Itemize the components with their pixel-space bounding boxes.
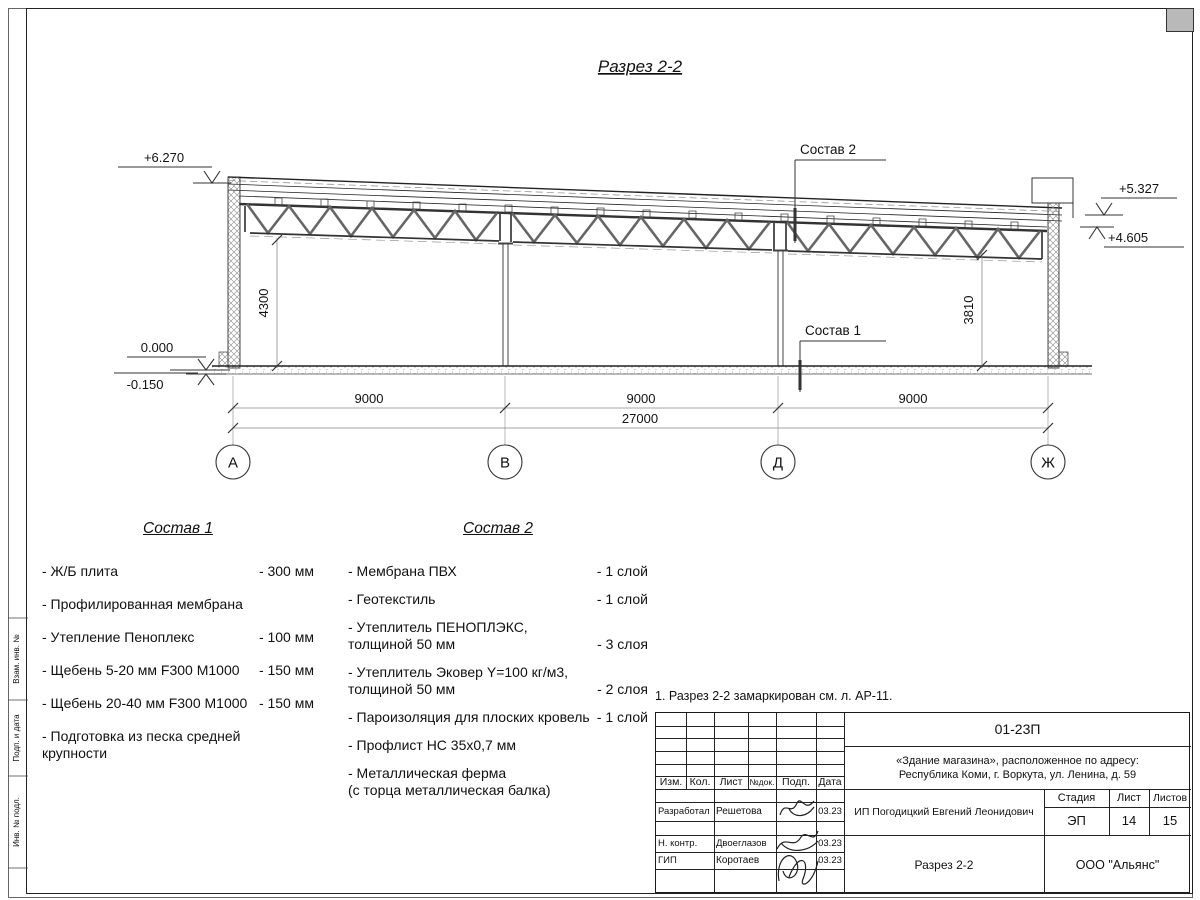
item-name: - Щебень 20-40 мм F300 М1000 — [42, 695, 247, 712]
list-item: - Геотекстиль - 1 слой — [348, 591, 648, 608]
elevation-0000-label: 0.000 — [141, 340, 174, 355]
truss-bottom-chords — [250, 233, 1042, 259]
tb-date-developer: 03.23 — [816, 802, 844, 821]
margin-label-inv: Инв. № подл. — [12, 797, 21, 847]
elevation-4605-label: +4.605 — [1108, 230, 1148, 245]
item-value: - 3 слоя — [597, 636, 648, 653]
callout-sostav1: Состав 1 — [805, 323, 861, 338]
tb-sheet-value: 14 — [1109, 807, 1149, 835]
item-name: - Ж/Б плита — [42, 563, 118, 580]
elevation-6270-label: +6.270 — [144, 150, 184, 165]
elevation-6270 — [118, 167, 231, 183]
section-drawing: Разрез 2-2 — [0, 0, 1200, 520]
list-item: - Утеплитель Эковер Y=100 кг/м3, толщино… — [348, 664, 648, 698]
sostav1-list: Состав 1 - Ж/Б плита - 300 мм - Профилир… — [42, 520, 314, 778]
signature-developer — [777, 793, 817, 821]
callouts: Состав 2 Состав 1 — [795, 142, 886, 392]
item-name: - Подготовка из песка средней крупности — [42, 728, 241, 762]
tb-role-gip: ГИП — [658, 852, 714, 869]
left-plinth — [219, 352, 228, 366]
list-item: - Утеплитель ПЕНОПЛЭКС, толщиной 50 мм -… — [348, 619, 648, 653]
item-value: - 150 мм — [259, 695, 314, 712]
floor-slab — [212, 366, 1092, 374]
grid-label-b: В — [500, 455, 510, 472]
left-wall — [228, 177, 240, 368]
tb-client: ИП Погодицкий Евгений Леонидович — [844, 789, 1044, 835]
dim-bay3: 9000 — [899, 391, 928, 406]
drawing-sheet: Разрез 2-2 — [0, 0, 1200, 900]
tb-object-name: «Здание магазина», расположенное по адре… — [844, 746, 1191, 789]
item-name: - Утепление Пеноплекс — [42, 629, 194, 646]
elevation-neg0150-label: -0.150 — [127, 377, 164, 392]
drawing-title: Разрез 2-2 — [598, 57, 683, 76]
roof-layers — [228, 177, 1073, 227]
list-item: - Мембрана ПВХ - 1 слой — [348, 563, 648, 580]
item-value: - 300 мм — [259, 563, 314, 580]
tb-header-podp: Подп. — [776, 776, 816, 789]
truss — [239, 198, 1047, 262]
columns — [498, 244, 788, 367]
dim-bay1: 9000 — [355, 391, 384, 406]
item-name: - Утеплитель ПЕНОПЛЭКС, толщиной 50 мм — [348, 619, 528, 653]
tb-name-developer: Решетова — [716, 802, 776, 821]
tb-header-kol: Кол. — [686, 776, 714, 789]
item-value: - 2 слоя — [597, 681, 648, 698]
signature-gip — [773, 841, 821, 891]
tb-stage-value: ЭП — [1044, 807, 1109, 835]
item-value: - 1 слой — [597, 709, 648, 726]
item-name: - Мембрана ПВХ — [348, 563, 457, 580]
grid-label-a: А — [228, 455, 238, 472]
tb-header-data: Дата — [816, 776, 844, 789]
tb-role-developer: Разработал — [658, 802, 714, 821]
item-name: - Геотекстиль — [348, 591, 435, 608]
dim-height-left: 4300 — [256, 289, 271, 318]
callout-sostav2: Состав 2 — [800, 142, 856, 157]
list-item: - Щебень 5-20 мм F300 М1000 - 150 мм — [42, 662, 314, 679]
item-name: - Утеплитель Эковер Y=100 кг/м3, толщино… — [348, 664, 568, 698]
tb-doc-number: 01-23П — [844, 713, 1191, 746]
elevation-5327-label: +5.327 — [1119, 181, 1159, 196]
truss-end-posts — [245, 206, 1042, 259]
tb-header-list: Лист — [714, 776, 748, 789]
list-item: - Профилированная мембрана — [42, 596, 314, 613]
roof-edge-detail — [1032, 178, 1073, 203]
item-name: - Профлист НС 35х0,7 мм — [348, 737, 516, 754]
list-item: - Ж/Б плита - 300 мм — [42, 563, 314, 580]
tb-stage-label: Стадия — [1044, 789, 1109, 807]
grid-label-zh: Ж — [1041, 455, 1055, 472]
tb-sheet-title: Разрез 2-2 — [844, 835, 1044, 894]
tb-name-gip: Коротаев — [716, 852, 776, 869]
list-item: - Утепление Пеноплекс - 100 мм — [42, 629, 314, 646]
item-value: - 1 слой — [597, 563, 648, 580]
margin-label-podp: Подп. и дата — [12, 714, 21, 762]
dim-total: 27000 — [622, 411, 658, 426]
tb-sheets-label: Листов — [1149, 789, 1191, 807]
right-wall — [1048, 203, 1059, 368]
item-name: - Пароизоляция для плоских кровель — [348, 709, 590, 726]
sostav2-title: Состав 2 — [348, 520, 648, 537]
list-item: - Металлическая ферма (с торца металличе… — [348, 765, 648, 799]
tb-sheets-value: 15 — [1149, 807, 1191, 835]
list-item: - Профлист НС 35х0,7 мм — [348, 737, 648, 754]
grid-label-d: Д — [773, 455, 783, 472]
list-item: - Подготовка из песка средней крупности — [42, 728, 314, 762]
list-item: - Пароизоляция для плоских кровель - 1 с… — [348, 709, 648, 726]
elevation-5327 — [1085, 198, 1177, 215]
left-margin-strip: Взам. инв. № Подп. и дата Инв. № подл. — [8, 560, 28, 893]
title-block: Изм. Кол. Лист №док. Подп. Дата Разработ… — [655, 712, 1190, 893]
tb-sheet-label: Лист — [1109, 789, 1149, 807]
tb-name-ncontrol: Двоеглазов — [716, 835, 776, 852]
item-name: - Профилированная мембрана — [42, 596, 243, 613]
dim-height-right: 3810 — [961, 296, 976, 325]
tb-header-izm: Изм. — [656, 776, 686, 789]
item-name: - Металлическая ферма (с торца металличе… — [348, 765, 551, 799]
tb-organization: ООО "Альянс" — [1044, 835, 1191, 894]
item-value: - 1 слой — [597, 591, 648, 608]
right-plinth — [1059, 352, 1068, 366]
dimensions: 9000 9000 9000 27000 4300 3810 — [228, 235, 1053, 433]
margin-label-vzam: Взам. инв. № — [12, 634, 21, 684]
sostav1-title: Состав 1 — [42, 520, 314, 537]
sostav2-list: Состав 2 - Мембрана ПВХ - 1 слой - Геоте… — [348, 520, 648, 810]
tb-object-line1: «Здание магазина», расположенное по адре… — [896, 754, 1139, 768]
tb-header-ndok: №док. — [748, 776, 776, 789]
tb-role-ncontrol: Н. контр. — [658, 835, 714, 852]
sheet-note: 1. Разрез 2-2 замаркирован см. л. АР-11. — [655, 689, 892, 703]
item-value: - 100 мм — [259, 629, 314, 646]
dim-bay2: 9000 — [627, 391, 656, 406]
list-item: - Щебень 20-40 мм F300 М1000 - 150 мм — [42, 695, 314, 712]
item-name: - Щебень 5-20 мм F300 М1000 — [42, 662, 240, 679]
tb-object-line2: Республика Коми, г. Воркута, ул. Ленина,… — [899, 768, 1136, 782]
item-value: - 150 мм — [259, 662, 314, 679]
